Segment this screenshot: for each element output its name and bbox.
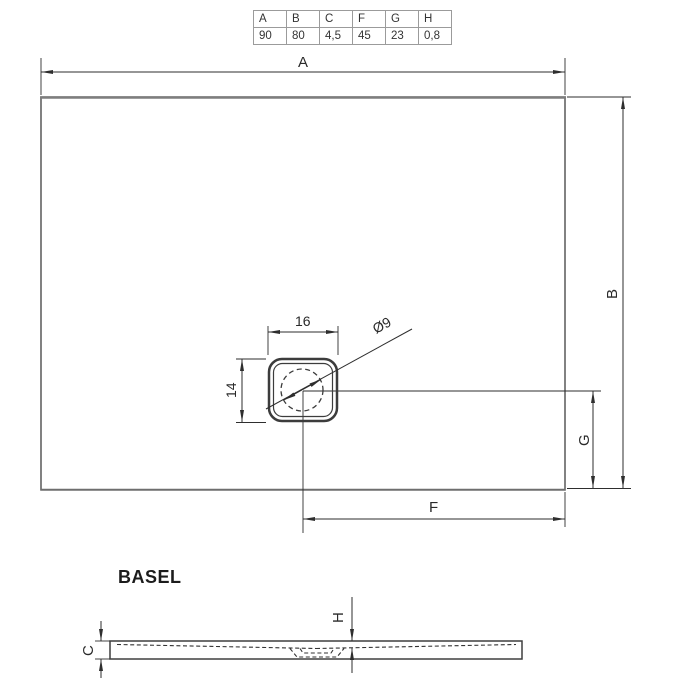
dim-14-label: 14 [223,382,239,398]
dimension-drain-width: 16 [268,313,338,355]
dim-b-label: B [604,289,621,299]
dim-c-label: C [80,645,97,656]
technical-drawing-svg: A B G F [0,0,686,689]
drawing-page: A B C F G H 90 80 4,5 45 23 0,8 BASEL [0,0,686,689]
dim-diameter-label: Ø9 [370,313,394,336]
dimension-b: B [567,97,631,489]
dimension-c: C [80,621,110,678]
dim-f-label: F [429,499,438,516]
dimension-f: F [303,492,565,527]
drain-center-lines [303,391,601,533]
dim-h-label: H [330,612,347,623]
plan-view: A B G F [40,54,631,533]
section-profile [110,641,522,659]
drain-trap-hidden [290,649,344,658]
dim-a-label: A [298,54,308,71]
dimension-drain-height: 14 [223,359,266,423]
dim-g-label: G [576,434,593,446]
section-view: H C [80,597,522,678]
dimension-a: A [41,54,565,95]
dimension-g: G [576,391,593,488]
dimension-h: H [330,597,352,673]
drain-diameter-callout: Ø9 [266,313,412,409]
dim-16-label: 16 [295,313,311,329]
